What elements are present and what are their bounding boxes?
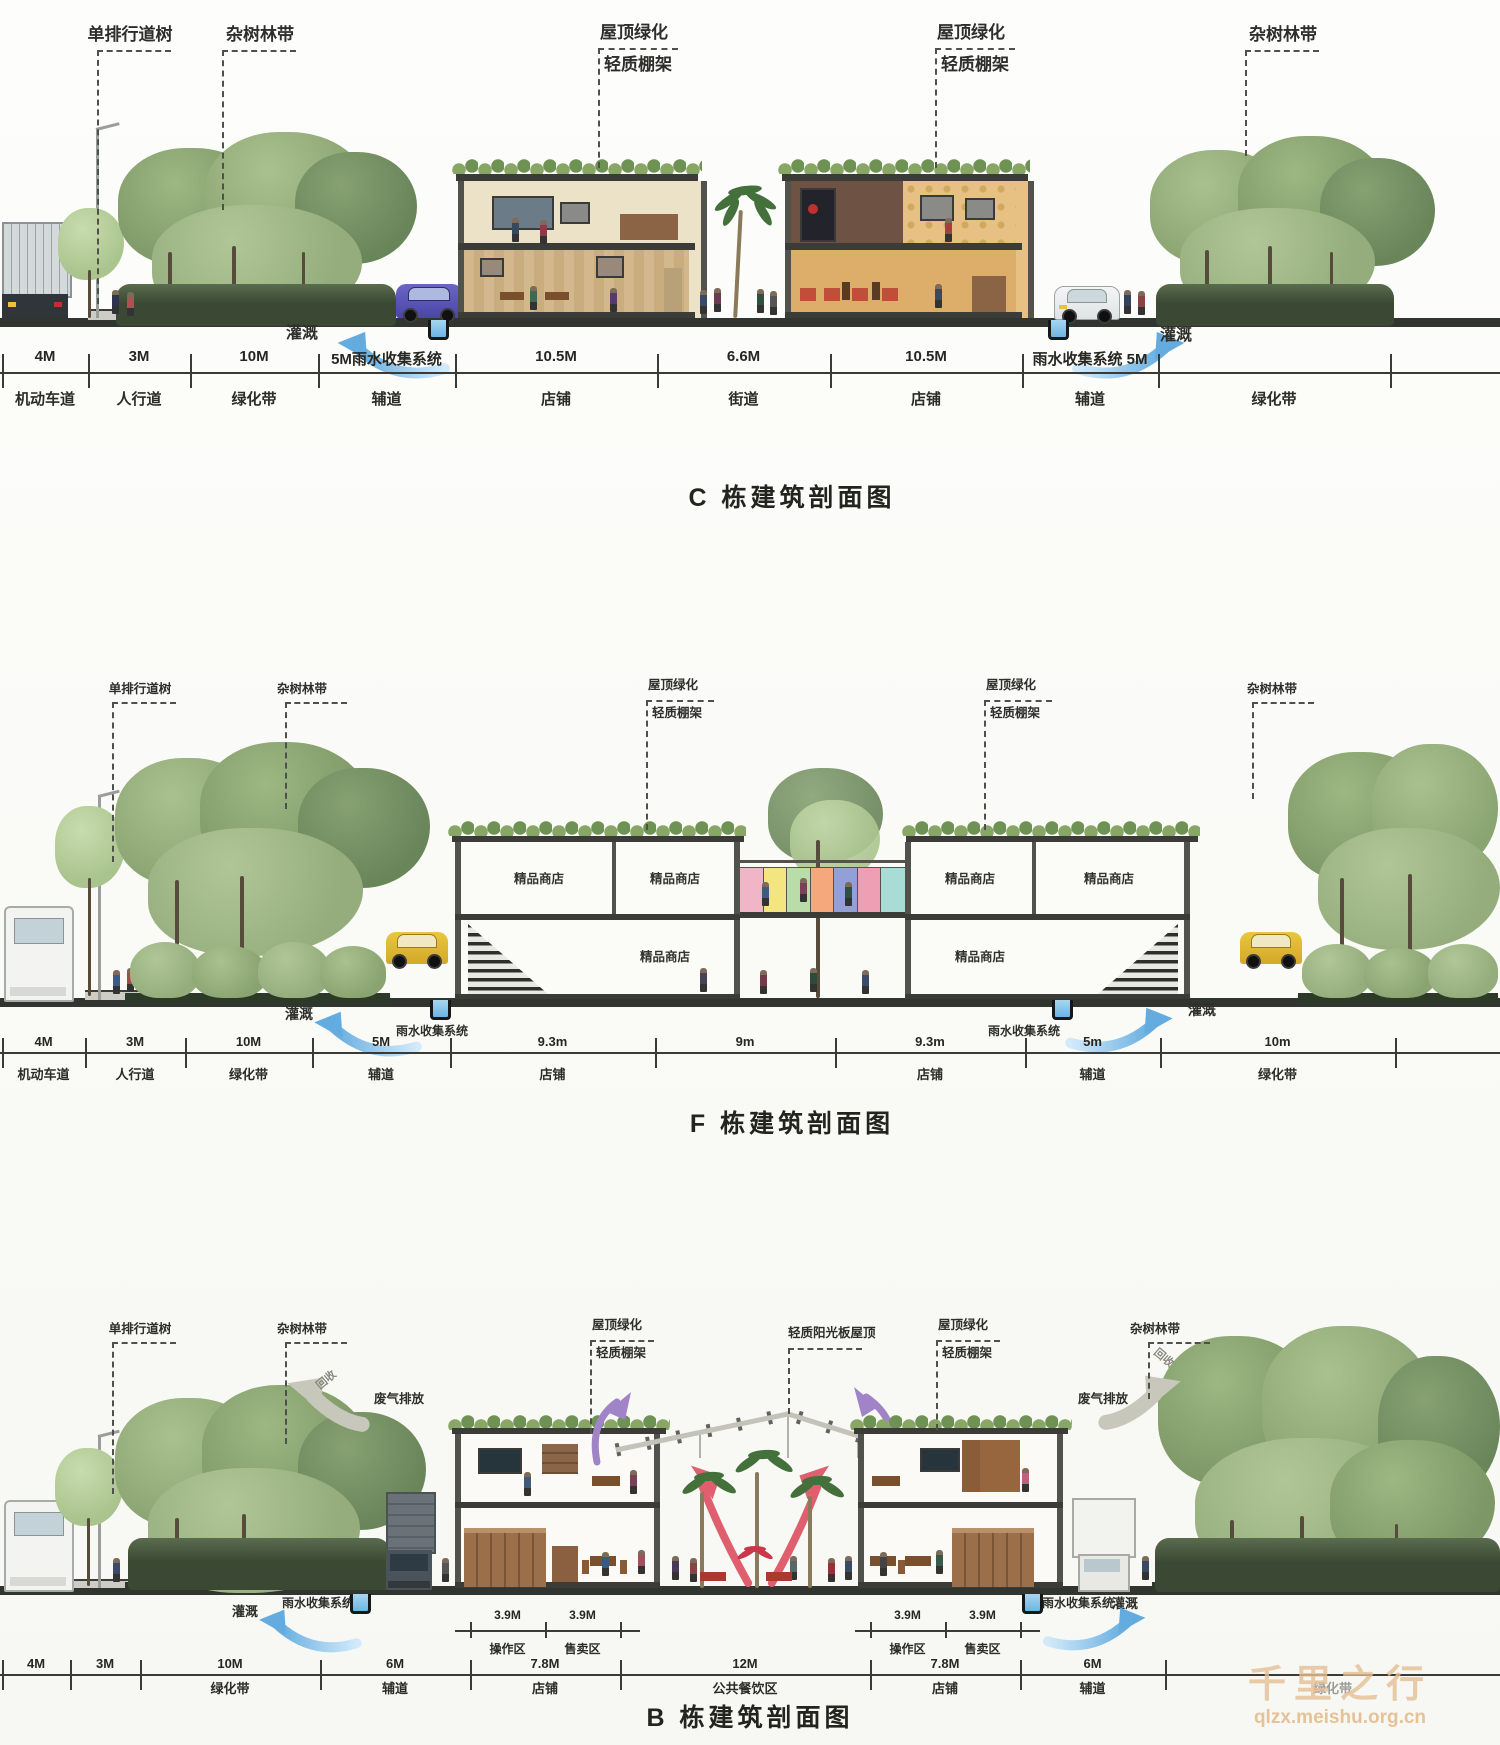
palm-trunk [755, 1472, 759, 1588]
dim-label: 9.3m [835, 1034, 1025, 1049]
bridge-panel [881, 868, 905, 914]
person [512, 218, 519, 242]
dim-label: 4M [2, 1656, 70, 1671]
subdim-line [855, 1630, 1040, 1632]
bridge-panel [740, 868, 764, 914]
callout-label: 单排行道树 [85, 682, 195, 698]
callout-label: 单排行道树 [70, 24, 190, 45]
section-title: C 栋建筑剖面图 [592, 478, 992, 514]
callout-leader-line [285, 702, 347, 809]
truck-windshield [1084, 1559, 1120, 1572]
car [396, 284, 462, 318]
callout-leader-line [1245, 50, 1319, 156]
watermark-url: qlzx.meishu.org.cn [1200, 1706, 1480, 1730]
road-label: 辅道 [1020, 1678, 1165, 1697]
table [545, 292, 569, 300]
floor-slab [458, 243, 695, 250]
dim-label: 6M [1020, 1656, 1165, 1671]
person [845, 1556, 852, 1580]
callout-leader-line [285, 1342, 347, 1444]
dim-label: 6M [320, 1656, 470, 1671]
person [630, 1470, 637, 1494]
van-bumper [10, 987, 66, 996]
dim-label: 10M [140, 1656, 320, 1671]
road-label: 绿化带 [190, 388, 318, 409]
road-label: 店铺 [835, 1064, 1025, 1083]
road-label: 辅道 [1022, 388, 1158, 409]
truck-light [54, 302, 62, 307]
dim-label: 10M [185, 1034, 312, 1049]
subdim-label: 3.9M [470, 1608, 545, 1622]
dim-label: 7.8M [470, 1656, 620, 1671]
roof-slab [782, 174, 1028, 181]
bridge-slab [740, 912, 905, 918]
poster-dot [808, 204, 818, 214]
road-label: 绿化带 [185, 1064, 312, 1083]
person [690, 1558, 697, 1582]
zone-label: 售卖区 [545, 1640, 620, 1657]
bar-counter [620, 214, 678, 240]
wall-art [560, 202, 590, 224]
section-title: F 栋建筑剖面图 [592, 1104, 992, 1140]
person [880, 1552, 887, 1576]
person [530, 286, 537, 310]
car-window [1251, 934, 1291, 948]
person [610, 288, 617, 312]
dim-label: 雨水收集系统 5M [1022, 348, 1158, 369]
callout-label: 杂树林带 [1105, 1322, 1205, 1338]
exhaust-label: 废气排放 [1078, 1392, 1128, 1408]
base-slab [455, 994, 740, 999]
dim-label: 5M [312, 1034, 450, 1049]
callout-leader-line [112, 1342, 176, 1494]
hedge [1155, 1538, 1500, 1592]
road-label: 绿化带 [1160, 1064, 1395, 1083]
bridge-panel [811, 868, 835, 914]
tree-trunk [87, 1518, 90, 1586]
column [455, 1434, 461, 1588]
dim-tick [470, 1622, 472, 1638]
road-label: 人行道 [85, 1064, 185, 1083]
person [638, 1550, 645, 1574]
person [113, 970, 120, 994]
wall-art [480, 258, 504, 277]
column [1184, 842, 1190, 998]
seat [852, 288, 868, 301]
column [455, 842, 461, 998]
wardrobe [962, 1440, 1020, 1492]
column [858, 1434, 864, 1588]
dim-label: 3M [70, 1656, 140, 1671]
truck-light [8, 302, 16, 307]
bench [700, 1572, 726, 1581]
irrigation-arrow [252, 1608, 362, 1650]
road-label: 店铺 [455, 388, 657, 409]
person [714, 288, 721, 312]
shelf [542, 1444, 578, 1474]
table [872, 282, 880, 300]
rainwater-collector [1048, 320, 1069, 340]
floor-slab [455, 914, 740, 920]
truck-cab [2, 294, 68, 318]
person [700, 968, 707, 992]
dim-label: 12M [620, 1656, 870, 1671]
road-label: 店铺 [450, 1064, 655, 1083]
wheel [1097, 309, 1112, 324]
chair [620, 1560, 627, 1574]
seat [800, 288, 816, 301]
truck-cargo [386, 1492, 436, 1554]
van [4, 906, 74, 1002]
road-label: 店铺 [870, 1678, 1020, 1697]
shop-label: 精品商店 [915, 868, 1025, 887]
person [800, 878, 807, 902]
person [113, 1558, 120, 1582]
column [612, 842, 616, 916]
person [760, 970, 767, 994]
callout-leader-line [97, 50, 171, 304]
roof-slab [456, 174, 698, 181]
bridge-railing [740, 860, 905, 863]
car [386, 932, 448, 964]
person [540, 220, 547, 244]
person [602, 1552, 609, 1576]
rainwater-collector [428, 320, 449, 340]
dim-label: 10m [1160, 1034, 1395, 1049]
watermark-brand: 千里之行 [1200, 1662, 1480, 1710]
person [1022, 1468, 1029, 1492]
counter [972, 276, 1006, 312]
person [1124, 290, 1131, 314]
shrub [1364, 948, 1436, 998]
van-window [14, 1512, 64, 1536]
dim-tick [620, 1622, 622, 1638]
callout-label: 屋顶绿化 [592, 1318, 642, 1334]
truck-cab [386, 1550, 432, 1590]
floor-slab [905, 914, 1190, 920]
wheel [1281, 954, 1296, 969]
table [500, 292, 524, 300]
truck-bumper [388, 1581, 430, 1588]
table [842, 282, 850, 300]
callout-label: 杂树林带 [252, 682, 352, 698]
kitchen-cabinets [464, 1528, 546, 1587]
road-label: 街道 [657, 388, 830, 409]
base-slab [785, 312, 1022, 318]
irrigation-label: 灌溉 [1160, 326, 1220, 346]
wall-art [596, 256, 624, 278]
person [757, 289, 764, 313]
truck-windshield [390, 1554, 428, 1571]
callout-label: 杂树林带 [1228, 24, 1338, 45]
dimension-line [0, 1052, 1500, 1054]
person [936, 1550, 943, 1574]
person [810, 968, 817, 992]
van-window [14, 918, 64, 944]
chair [898, 1560, 905, 1574]
palm-trunk [808, 1496, 812, 1588]
floor-slab [858, 1502, 1063, 1508]
bridge-panel [858, 868, 882, 914]
counter [552, 1546, 578, 1582]
tv-screen [478, 1448, 522, 1474]
shrub [1428, 944, 1498, 998]
callout-label: 轻质棚架 [942, 1346, 992, 1362]
floor-slab [455, 1502, 660, 1508]
wheel [427, 954, 442, 969]
person [828, 1558, 835, 1582]
callout-label: 轻质棚架 [604, 54, 672, 75]
seat [824, 288, 840, 301]
column [905, 842, 911, 998]
dim-label: 10M [190, 348, 318, 365]
car [1054, 286, 1120, 320]
road-label: 机动车道 [2, 388, 88, 409]
dim-label: 10.5M [830, 348, 1022, 365]
callout-label: 屋顶绿化 [938, 1318, 988, 1334]
hedge [128, 1538, 390, 1590]
shrub [130, 942, 200, 998]
dim-tick [1020, 1622, 1022, 1638]
dim-label: 10.5M [455, 348, 657, 365]
person [845, 882, 852, 906]
callout-label: 屋顶绿化 [937, 22, 1005, 43]
dimension-line [0, 372, 1500, 374]
road-label: 绿化带 [140, 1678, 320, 1697]
callout-leader-line [1252, 702, 1314, 799]
shop-label: 精品商店 [600, 946, 730, 965]
column [734, 842, 740, 998]
dim-tick [945, 1622, 947, 1638]
person [945, 218, 952, 242]
dim-tick [870, 1622, 872, 1638]
road-label: 辅道 [312, 1064, 450, 1083]
dim-label: 5M雨水收集系统 [318, 348, 455, 369]
seat [882, 288, 898, 301]
person [672, 1556, 679, 1580]
doorway [664, 268, 682, 312]
truck-cab [1078, 1554, 1130, 1592]
dim-tick [1390, 354, 1392, 388]
callout-leader-line [112, 702, 176, 862]
road-label: 绿化带 [1158, 388, 1390, 409]
tv-screen [920, 1448, 960, 1472]
tree-trunk [88, 878, 91, 996]
car [1240, 932, 1302, 964]
callout-label: 杂树林带 [252, 1322, 352, 1338]
callout-label: 轻质棚架 [652, 706, 702, 722]
person [1142, 1556, 1149, 1580]
car-window [397, 934, 437, 948]
dim-label: 9.3m [450, 1034, 655, 1049]
road-label: 公共餐饮区 [620, 1678, 870, 1697]
table [905, 1556, 931, 1566]
column [1057, 1434, 1063, 1588]
section-title: B 栋建筑剖面图 [550, 1698, 950, 1734]
person [1138, 291, 1145, 315]
dim-tick [1158, 354, 1160, 388]
road-label: 店铺 [470, 1678, 620, 1697]
road-label: 人行道 [88, 388, 190, 409]
kitchen-cabinets [952, 1528, 1034, 1587]
subdim-label: 3.9M [945, 1608, 1020, 1622]
building-sections-sheet: 灌溉 灌溉 4M 3M 10M 5M雨水收集系统 10.5M 6.6M 10.5… [0, 0, 1500, 1745]
rainwater-collector [350, 1594, 371, 1614]
callout-label: 轻质棚架 [596, 1346, 646, 1362]
callout-leader-line [1148, 1342, 1210, 1399]
truck-cargo [1072, 1498, 1136, 1558]
dim-label: 3M [88, 348, 190, 365]
person [862, 970, 869, 994]
road-label: 辅道 [1025, 1064, 1160, 1083]
base-slab [458, 312, 695, 318]
dim-label: 9m [655, 1034, 835, 1049]
callout-label: 屋顶绿化 [986, 678, 1036, 694]
shop-label: 精品商店 [1040, 868, 1178, 887]
rainwater-collector [430, 1000, 451, 1020]
palm-trunk [733, 210, 743, 318]
wheel [392, 954, 407, 969]
person [700, 290, 707, 314]
road-label: 店铺 [830, 388, 1022, 409]
bridge-panel [787, 868, 811, 914]
dim-tick [545, 1622, 547, 1638]
wheel [403, 308, 418, 323]
callout-label: 轻质棚架 [941, 54, 1009, 75]
callout-label: 杂树林带 [1222, 682, 1322, 698]
car-window [1067, 289, 1107, 303]
car-window [408, 287, 450, 301]
shrub [1302, 944, 1372, 998]
irrigation-arrow [1040, 1606, 1155, 1648]
chair [582, 1560, 589, 1574]
zone-label: 操作区 [870, 1640, 945, 1657]
shop-label: 精品商店 [470, 868, 608, 887]
callout-label: 轻质阳光板屋顶 [788, 1326, 876, 1342]
subdim-label: 3.9M [870, 1608, 945, 1622]
exhaust-label: 废气排放 [374, 1392, 424, 1408]
shop-label: 精品商店 [620, 868, 730, 887]
dim-label: 6.6M [657, 348, 830, 365]
base-slab [905, 994, 1190, 999]
poster [800, 188, 836, 242]
person [762, 882, 769, 906]
callout-label: 屋顶绿化 [600, 22, 668, 43]
road-label: 辅道 [318, 388, 455, 409]
dim-label: 4M [2, 1034, 85, 1049]
dim-label: 3M [85, 1034, 185, 1049]
callout-label: 杂树林带 [205, 24, 315, 45]
dim-label: 7.8M [870, 1656, 1020, 1671]
road-label: 辅道 [320, 1678, 470, 1697]
person [770, 291, 777, 315]
wheel [1246, 954, 1261, 969]
floor-slab [785, 243, 1022, 250]
table [592, 1476, 620, 1486]
shrub [320, 946, 386, 998]
zone-label: 售卖区 [945, 1640, 1020, 1657]
hedge [1156, 284, 1394, 326]
table [872, 1476, 900, 1486]
callout-leader-line [222, 50, 296, 210]
callout-leader-line [788, 1348, 862, 1414]
shrub [192, 946, 267, 998]
shop-label: 精品商店 [915, 946, 1045, 965]
tree-trunk [88, 270, 91, 318]
tree-canopy [148, 828, 363, 956]
car-light [1059, 305, 1067, 309]
subdim-line [455, 1630, 640, 1632]
dim-label: 5m [1025, 1034, 1160, 1049]
person [442, 1558, 449, 1582]
irrigation-label: 灌溉 [1188, 1002, 1238, 1020]
subdim-label: 3.9M [545, 1608, 620, 1622]
callout-label: 屋顶绿化 [648, 678, 698, 694]
dim-label: 4M [2, 348, 88, 365]
road-label: 机动车道 [2, 1064, 85, 1083]
bench [766, 1572, 792, 1581]
wall-art [965, 198, 995, 220]
column [1032, 842, 1036, 916]
callout-label: 单排行道树 [85, 1322, 195, 1338]
callout-label: 轻质棚架 [990, 706, 1040, 722]
zone-label: 操作区 [470, 1640, 545, 1657]
person [524, 1472, 531, 1496]
person [935, 284, 942, 308]
dim-tick [1395, 1038, 1397, 1068]
van-bumper [10, 1577, 66, 1586]
